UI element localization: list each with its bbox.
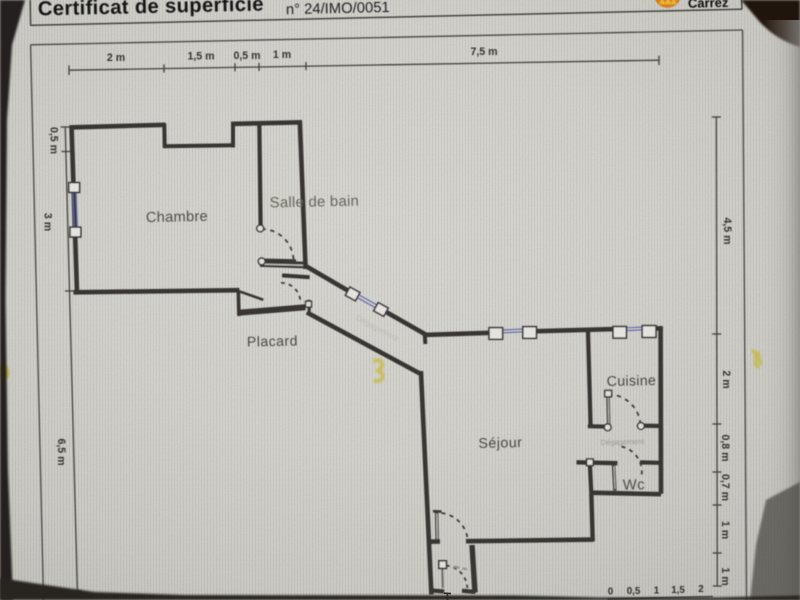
svg-text:Placard: Placard: [247, 332, 298, 349]
svg-text:Chambre: Chambre: [146, 209, 208, 226]
svg-text:1,5 m: 1,5 m: [187, 51, 214, 63]
svg-text:6,5 m: 6,5 m: [55, 438, 67, 465]
svg-text:2: 2: [698, 584, 704, 595]
svg-text:7,5 m: 7,5 m: [470, 46, 497, 58]
svg-text:1,5: 1,5: [671, 585, 685, 596]
svg-text:2 m: 2 m: [720, 370, 732, 388]
svg-text:3 m: 3 m: [42, 213, 54, 231]
svg-text:Carrez: Carrez: [688, 0, 729, 11]
svg-text:4,5 m: 4,5 m: [721, 217, 733, 244]
svg-text:2 m: 2 m: [107, 52, 125, 64]
svg-text:0: 0: [608, 587, 614, 598]
svg-text:0,5 m: 0,5 m: [233, 50, 260, 62]
svg-text:0,5: 0,5: [627, 586, 641, 597]
svg-text:1 m: 1 m: [273, 49, 291, 61]
svg-text:Dégagement: Dégagement: [601, 437, 646, 447]
svg-text:1: 1: [654, 585, 660, 596]
svg-text:1 m: 1 m: [719, 521, 731, 539]
svg-text:1 m: 1 m: [719, 567, 731, 585]
svg-text:0,7 m: 0,7 m: [719, 474, 731, 501]
svg-text:Cuisine: Cuisine: [607, 373, 657, 390]
svg-text:n° 24/IMO/0051: n° 24/IMO/0051: [286, 0, 390, 18]
svg-text:0,5 m: 0,5 m: [48, 127, 60, 154]
svg-text:Salle de bain: Salle de bain: [270, 194, 360, 212]
svg-text:0,8 m: 0,8 m: [719, 434, 731, 461]
svg-text:Séjour: Séjour: [478, 435, 522, 452]
svg-text:Wc: Wc: [623, 477, 646, 493]
